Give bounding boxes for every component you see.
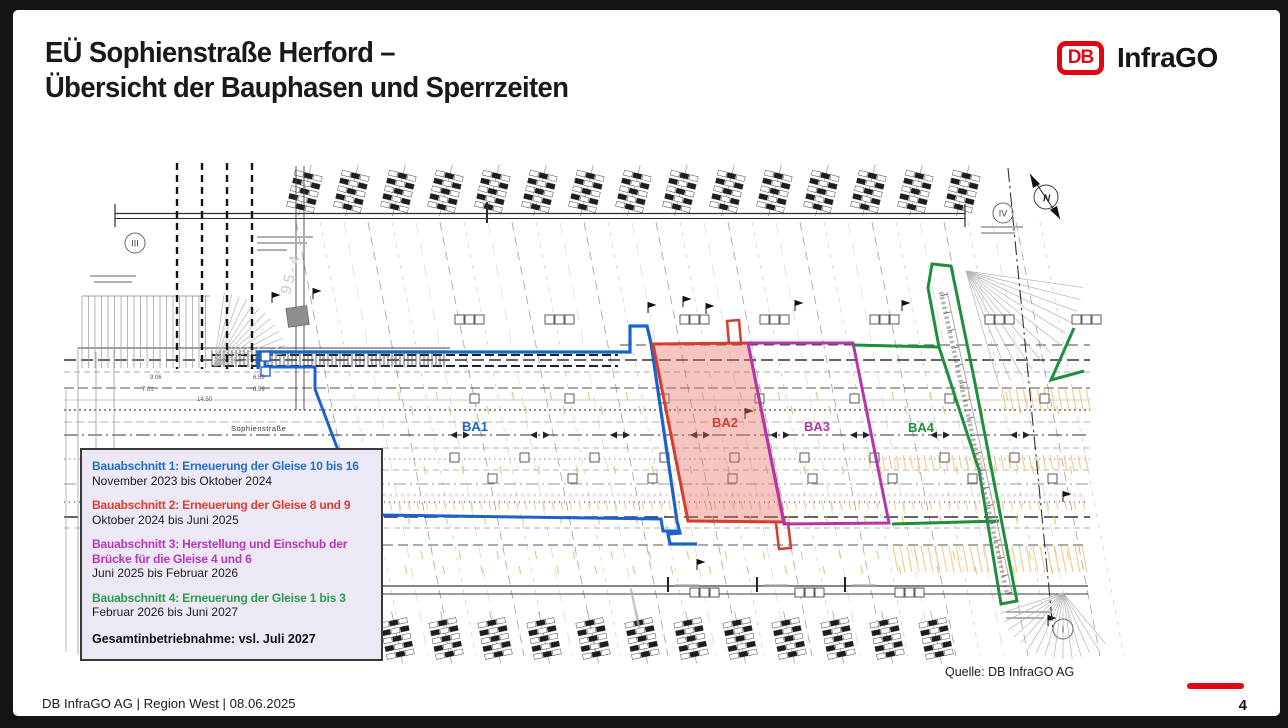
source-note: Quelle: DB InfraGO AG xyxy=(945,665,1074,679)
label-ba3: BA3 xyxy=(804,419,830,434)
legend-summary: Gesamtinbetriebnahme: vsl. Juli 2027 xyxy=(92,632,371,647)
label-ba1: BA1 xyxy=(462,419,488,434)
svg-text:6.59: 6.59 xyxy=(253,387,265,393)
north-compass-icon: N xyxy=(1030,174,1060,219)
legend-ba3-title: Bauabschnitt 3: Herstellung und Einschub… xyxy=(92,537,371,566)
legend-ba3-period: Juni 2025 bis Februar 2026 xyxy=(92,566,371,581)
street-label: Sophienstraße xyxy=(231,424,286,433)
legend-ba2-title: Bauabschnitt 2: Erneuerung der Gleise 8 … xyxy=(92,498,371,513)
logo-brand-text: InfraGO xyxy=(1117,42,1218,74)
section-marker-i: I xyxy=(1062,625,1065,635)
db-infrago-logo: DB InfraGO xyxy=(1057,41,1218,75)
legend-ba1-title: Bauabschnitt 1: Erneuerung der Gleise 10… xyxy=(92,459,371,474)
phase-ba2-top-tab xyxy=(727,320,741,343)
label-ba2: BA2 xyxy=(712,415,738,430)
legend-item-ba2: Bauabschnitt 2: Erneuerung der Gleise 8 … xyxy=(92,498,371,527)
svg-text:7.01: 7.01 xyxy=(142,387,154,393)
legend-item-ba3: Bauabschnitt 3: Herstellung und Einschub… xyxy=(92,537,371,581)
label-ba4: BA4 xyxy=(908,420,935,435)
svg-text:14.50: 14.50 xyxy=(197,397,213,403)
legend-ba4-title: Bauabschnitt 4: Erneuerung der Gleise 1 … xyxy=(92,591,371,606)
legend-ba4-period: Februar 2026 bis Juni 2027 xyxy=(92,605,371,620)
phase-ba1-inner-edge xyxy=(265,352,341,458)
dimension-texts: 9.06 6.59 6.59 7.01 14.50 xyxy=(142,375,265,403)
legend-item-ba1: Bauabschnitt 1: Erneuerung der Gleise 10… xyxy=(92,459,371,488)
phase-ba4-bottom-edge xyxy=(892,521,999,524)
building-footprint xyxy=(286,306,309,328)
compass-n-label: N xyxy=(1043,194,1051,205)
phase-ba4-top-edge xyxy=(853,345,938,347)
legend-item-ba4: Bauabschnitt 4: Erneuerung der Gleise 1 … xyxy=(92,591,371,620)
page-accent-bar xyxy=(1187,683,1244,689)
phase-legend: Bauabschnitt 1: Erneuerung der Gleise 10… xyxy=(80,448,383,661)
section-marker-iv: IV xyxy=(999,209,1008,219)
footer-text: DB InfraGO AG | Region West | 08.06.2025 xyxy=(42,696,296,711)
section-marker-iii: III xyxy=(131,239,139,249)
page-title: EÜ Sophienstraße Herford – Übersicht der… xyxy=(45,36,568,106)
page-number: 4 xyxy=(1213,697,1247,714)
legend-ba2-period: Oktober 2024 bis Juni 2025 xyxy=(92,513,371,528)
ba1-marker-box xyxy=(261,352,270,361)
svg-text:6.59: 6.59 xyxy=(253,375,265,381)
legend-ba1-period: November 2023 bis Oktober 2024 xyxy=(92,474,371,489)
chainage-label: 95-4 xyxy=(277,251,304,296)
title-line-2: Übersicht der Bauphasen und Sperrzeiten xyxy=(45,71,568,106)
title-line-1: EÜ Sophienstraße Herford – xyxy=(45,36,568,71)
dimension-clusters-bottom xyxy=(378,609,955,667)
slide: EÜ Sophienstraße Herford – Übersicht der… xyxy=(13,10,1280,716)
svg-text:9.06: 9.06 xyxy=(150,375,162,381)
db-logo-icon: DB xyxy=(1057,41,1104,75)
dimension-clusters-top xyxy=(285,161,983,219)
